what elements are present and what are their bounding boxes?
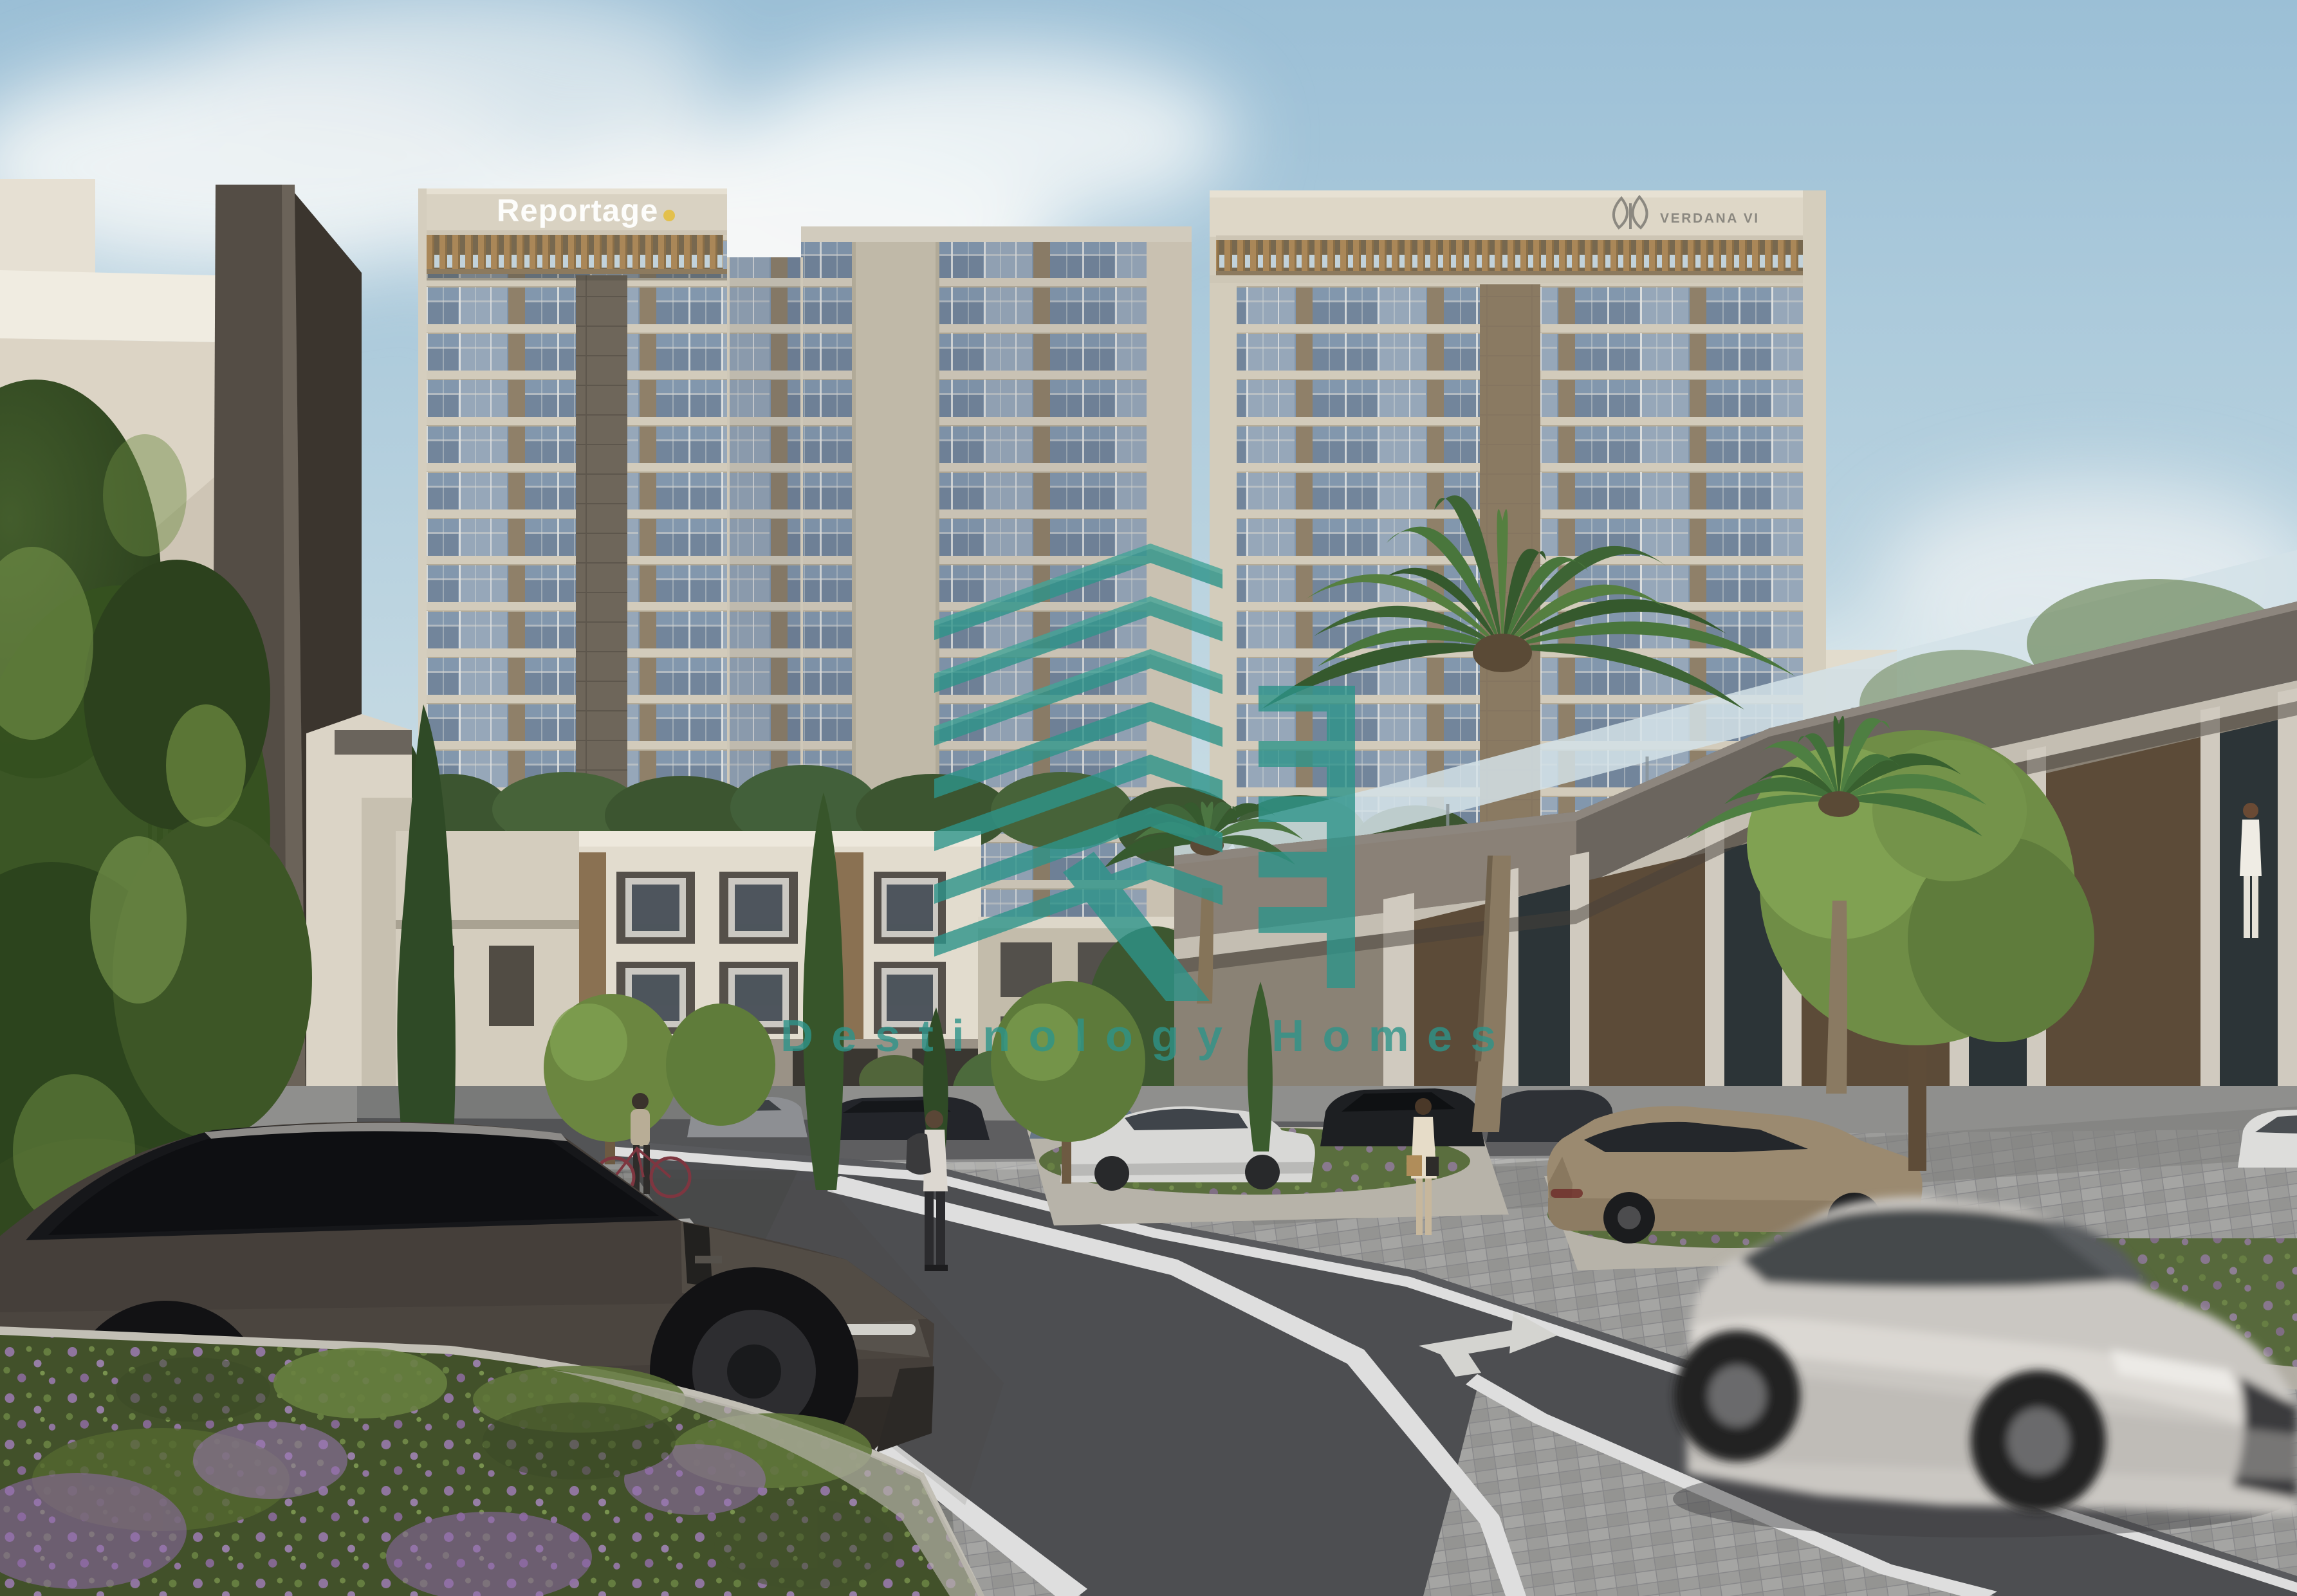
svg-text:Reportage: Reportage [497, 194, 658, 228]
svg-text:VERDANA VI: VERDANA VI [1660, 211, 1760, 226]
svg-text:Destinology Homes: Destinology Homes [780, 1011, 1514, 1061]
